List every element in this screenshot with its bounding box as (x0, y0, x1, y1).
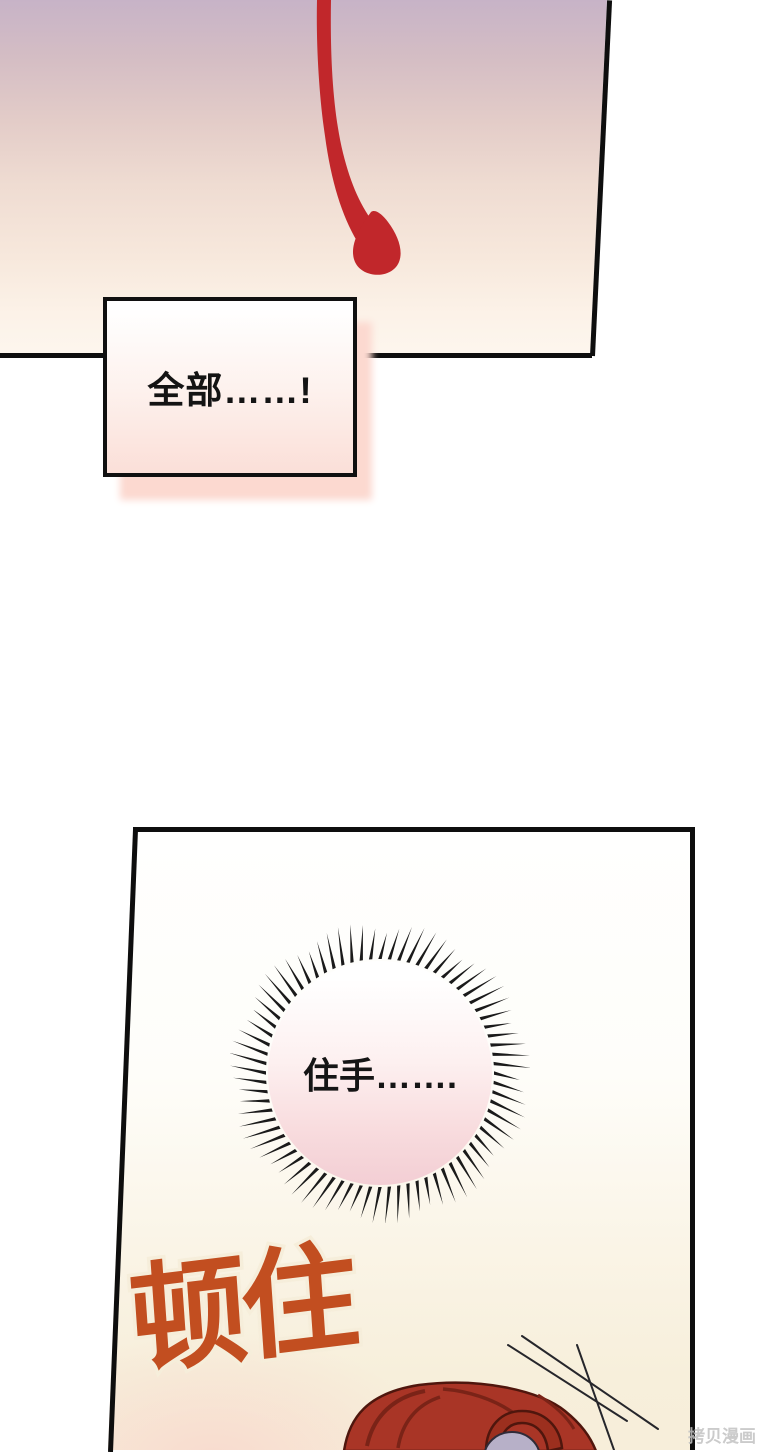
speech-bubble-box: 全部……! (103, 297, 357, 477)
character-art (108, 827, 694, 1450)
panel-bottom-border-top (133, 827, 694, 832)
watermark: 拷贝漫画 (688, 1422, 760, 1447)
character-head (344, 1383, 596, 1450)
speech-text: 全部……! (147, 360, 312, 414)
panel-bottom: 住手……. 顿住 (108, 827, 694, 1450)
blood-drip-stem (317, 0, 376, 241)
panel-bottom-border-right (690, 827, 695, 1450)
